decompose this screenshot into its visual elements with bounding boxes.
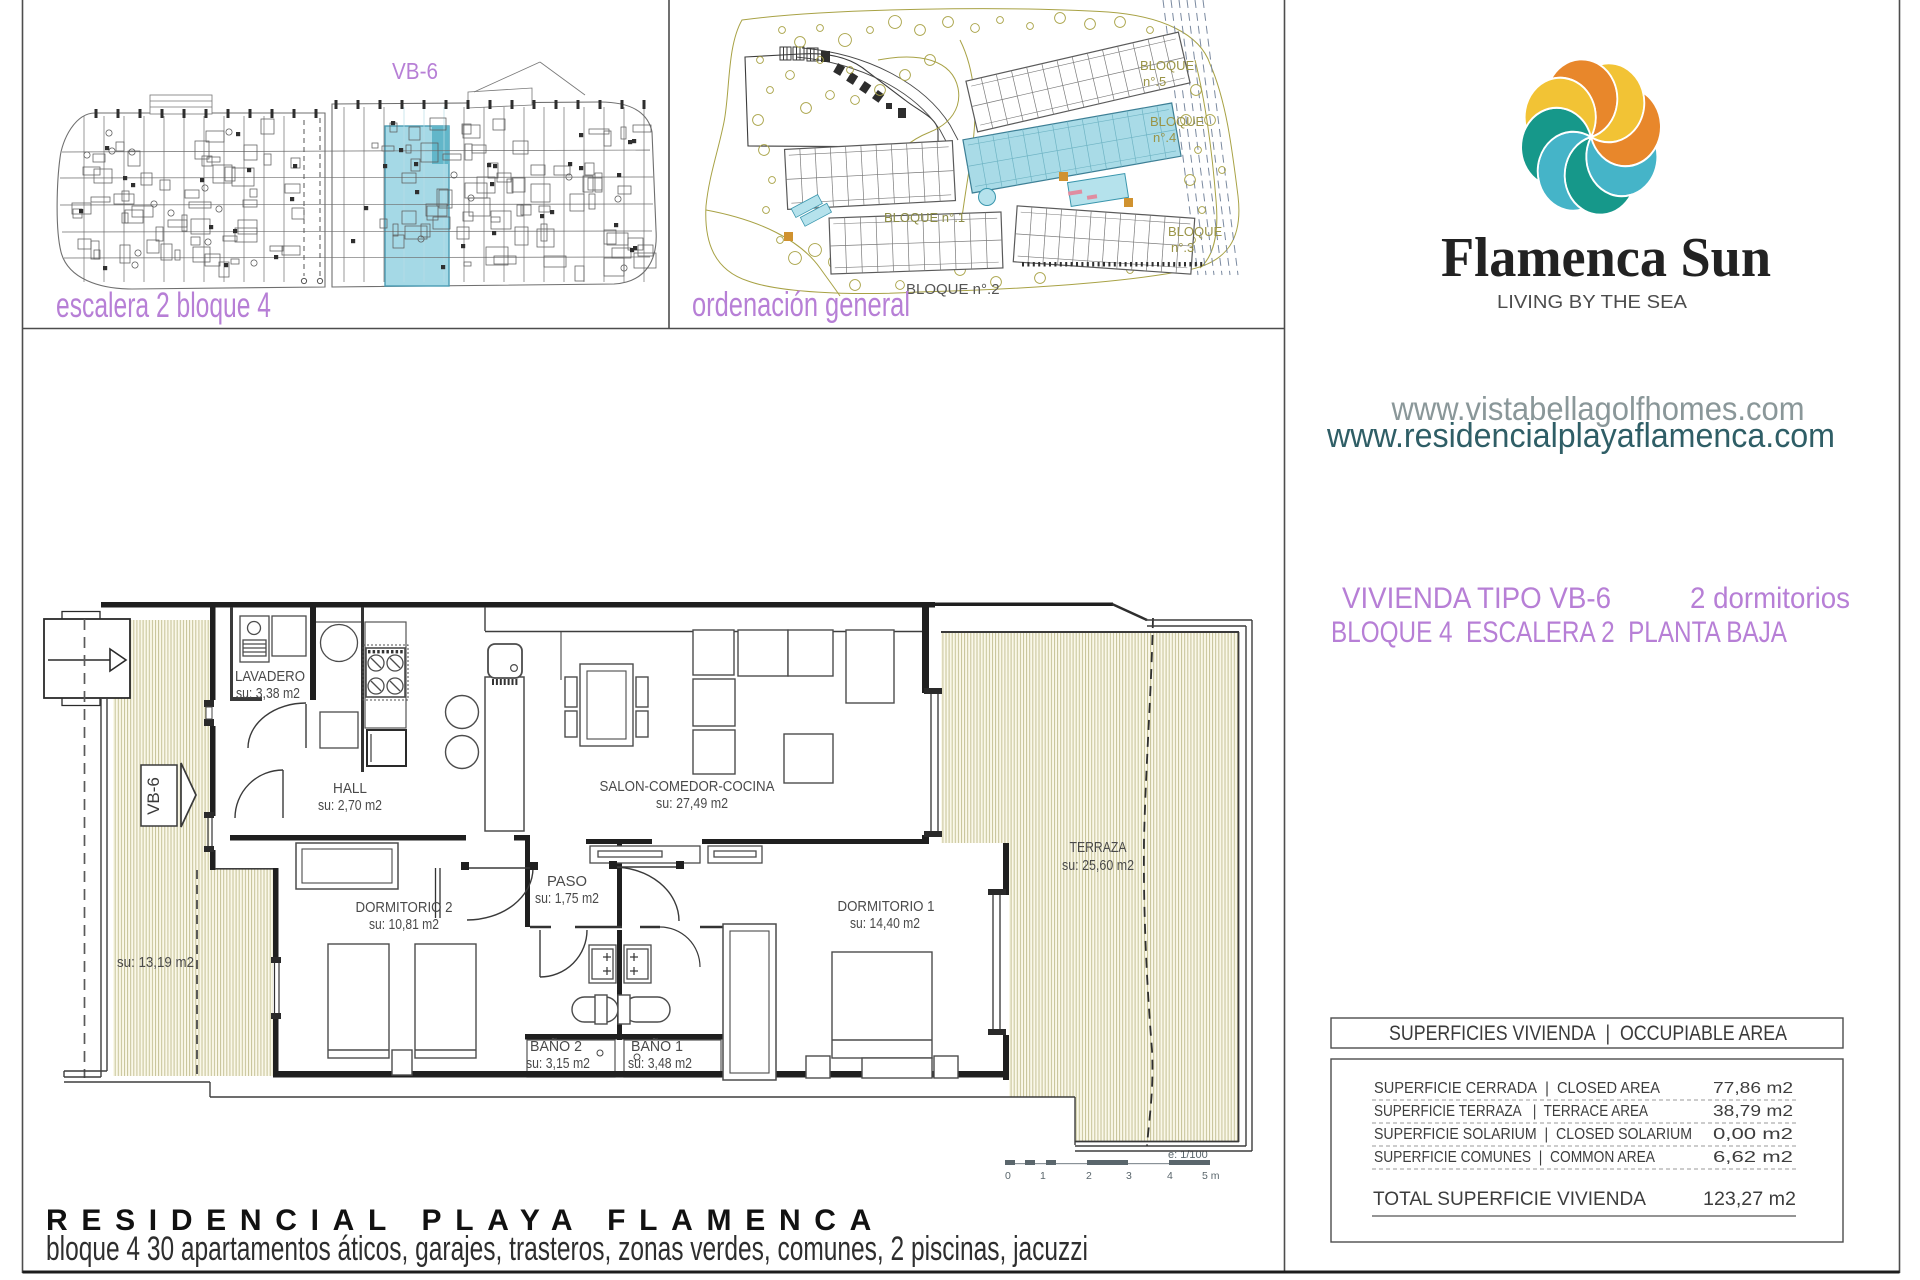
svg-text:2 dormitorios: 2 dormitorios — [1690, 582, 1850, 615]
svg-text:PASO: PASO — [547, 873, 587, 890]
svg-text:0,00 m2: 0,00 m2 — [1713, 1126, 1793, 1143]
svg-text:su: 10,81 m2: su: 10,81 m2 — [369, 917, 439, 933]
svg-text:su: 3,48 m2: su: 3,48 m2 — [628, 1056, 692, 1072]
svg-text:BLOQUE n°.2: BLOQUE n°.2 — [906, 281, 1000, 298]
svg-text:3: 3 — [1126, 1170, 1132, 1182]
svg-text:38,79 m2: 38,79 m2 — [1713, 1103, 1793, 1120]
svg-text:su: 3,15 m2: su: 3,15 m2 — [526, 1056, 590, 1072]
svg-text:BAÑO 2: BAÑO 2 — [530, 1038, 582, 1055]
svg-text:SALON-COMEDOR-COCINA: SALON-COMEDOR-COCINA — [600, 778, 775, 795]
svg-text:VIVIENDA TIPO VB-6: VIVIENDA TIPO VB-6 — [1342, 582, 1611, 615]
svg-text:BLOQUE 4 ESCALERA 2 PLANTA B: BLOQUE 4 ESCALERA 2 PLANTA BAJA — [1331, 616, 1787, 649]
svg-text:BLOQUE: BLOQUE — [1168, 224, 1223, 239]
svg-text:su: 13,19 m2: su: 13,19 m2 — [117, 955, 194, 971]
svg-text:www.residencialplayaflamenca.c: www.residencialplayaflamenca.com — [1326, 417, 1835, 455]
svg-text:SUPERFICIE COMUNES | COMMON: SUPERFICIE COMUNES | COMMON AREA — [1374, 1149, 1656, 1166]
svg-text:DORMITORIO 2: DORMITORIO 2 — [356, 899, 453, 916]
svg-text:4: 4 — [1167, 1170, 1173, 1182]
svg-text:BLOQUE n°.1: BLOQUE n°.1 — [884, 210, 965, 225]
svg-text:LAVADERO: LAVADERO — [235, 668, 305, 685]
svg-text:n°.5: n°.5 — [1143, 74, 1166, 89]
svg-text:SUPERFICIES VIVIENDA | OCCUP: SUPERFICIES VIVIENDA | OCCUPIABLE AREA — [1389, 1022, 1787, 1045]
svg-text:su: 3,38 m2: su: 3,38 m2 — [236, 686, 300, 702]
svg-text:SUPERFICIE SOLARIUM | CLOSED: SUPERFICIE SOLARIUM | CLOSED SOLARIUM — [1374, 1126, 1692, 1143]
svg-text:5 m: 5 m — [1202, 1170, 1220, 1182]
svg-text:su: 14,40 m2: su: 14,40 m2 — [850, 916, 920, 932]
svg-text:DORMITORIO 1: DORMITORIO 1 — [838, 898, 935, 915]
svg-text:123,27 m2: 123,27 m2 — [1703, 1189, 1796, 1210]
svg-text:1: 1 — [1040, 1170, 1046, 1182]
svg-text:su: 2,70 m2: su: 2,70 m2 — [318, 798, 382, 814]
svg-text:ordenación general: ordenación general — [692, 286, 910, 324]
svg-text:Flamenca Sun: Flamenca Sun — [1441, 227, 1771, 289]
svg-text:SUPERFICIE TERRAZA | TERRAC: SUPERFICIE TERRAZA | TERRACE AREA — [1374, 1103, 1649, 1120]
svg-text:su: 25,60 m2: su: 25,60 m2 — [1062, 858, 1134, 874]
svg-text:VB-6: VB-6 — [144, 777, 163, 815]
svg-text:2: 2 — [1086, 1170, 1092, 1182]
svg-text:HALL: HALL — [333, 780, 367, 797]
svg-text:SUPERFICIE CERRADA | CLOSED: SUPERFICIE CERRADA | CLOSED AREA — [1374, 1080, 1661, 1097]
svg-text:0: 0 — [1005, 1170, 1011, 1182]
svg-text:escalera 2 bloque 4: escalera 2 bloque 4 — [56, 286, 271, 325]
svg-text:BAÑO 1: BAÑO 1 — [631, 1038, 683, 1055]
svg-text:77,86 m2: 77,86 m2 — [1713, 1080, 1793, 1097]
svg-text:n°.4: n°.4 — [1153, 130, 1176, 145]
svg-text:TOTAL SUPERFICIE VIVIENDA: TOTAL SUPERFICIE VIVIENDA — [1373, 1189, 1646, 1210]
svg-text:su: 1,75 m2: su: 1,75 m2 — [535, 891, 599, 907]
svg-text:su: 27,49 m2: su: 27,49 m2 — [656, 796, 728, 812]
svg-text:VB-6: VB-6 — [392, 58, 438, 84]
svg-text:bloque 4 30 apartamentos ático: bloque 4 30 apartamentos áticos, garajes… — [46, 1230, 1088, 1268]
svg-text:BLOQUE: BLOQUE — [1140, 58, 1195, 73]
svg-text:n°.3: n°.3 — [1171, 240, 1194, 255]
svg-text:LIVING BY THE SEA: LIVING BY THE SEA — [1497, 292, 1687, 312]
svg-text:TERRAZA: TERRAZA — [1070, 839, 1127, 856]
svg-text:BLOQUE: BLOQUE — [1150, 114, 1205, 129]
svg-text:6,62 m2: 6,62 m2 — [1713, 1149, 1793, 1166]
